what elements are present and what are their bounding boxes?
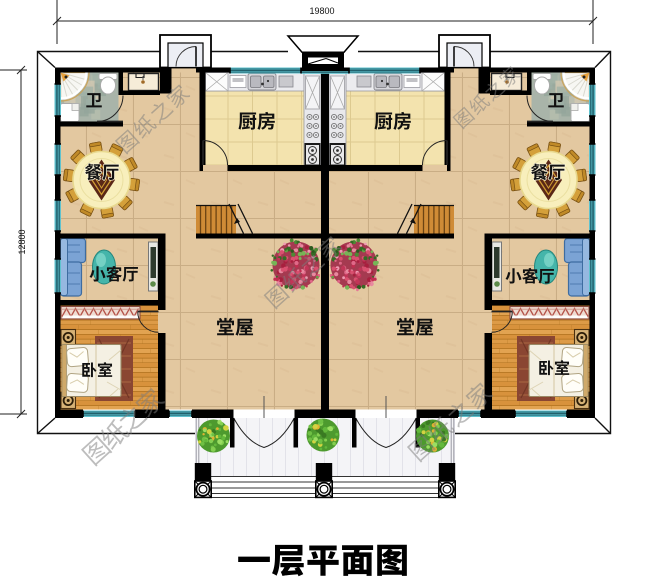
svg-text:19800: 19800	[309, 6, 334, 16]
svg-text:12800: 12800	[17, 229, 27, 254]
